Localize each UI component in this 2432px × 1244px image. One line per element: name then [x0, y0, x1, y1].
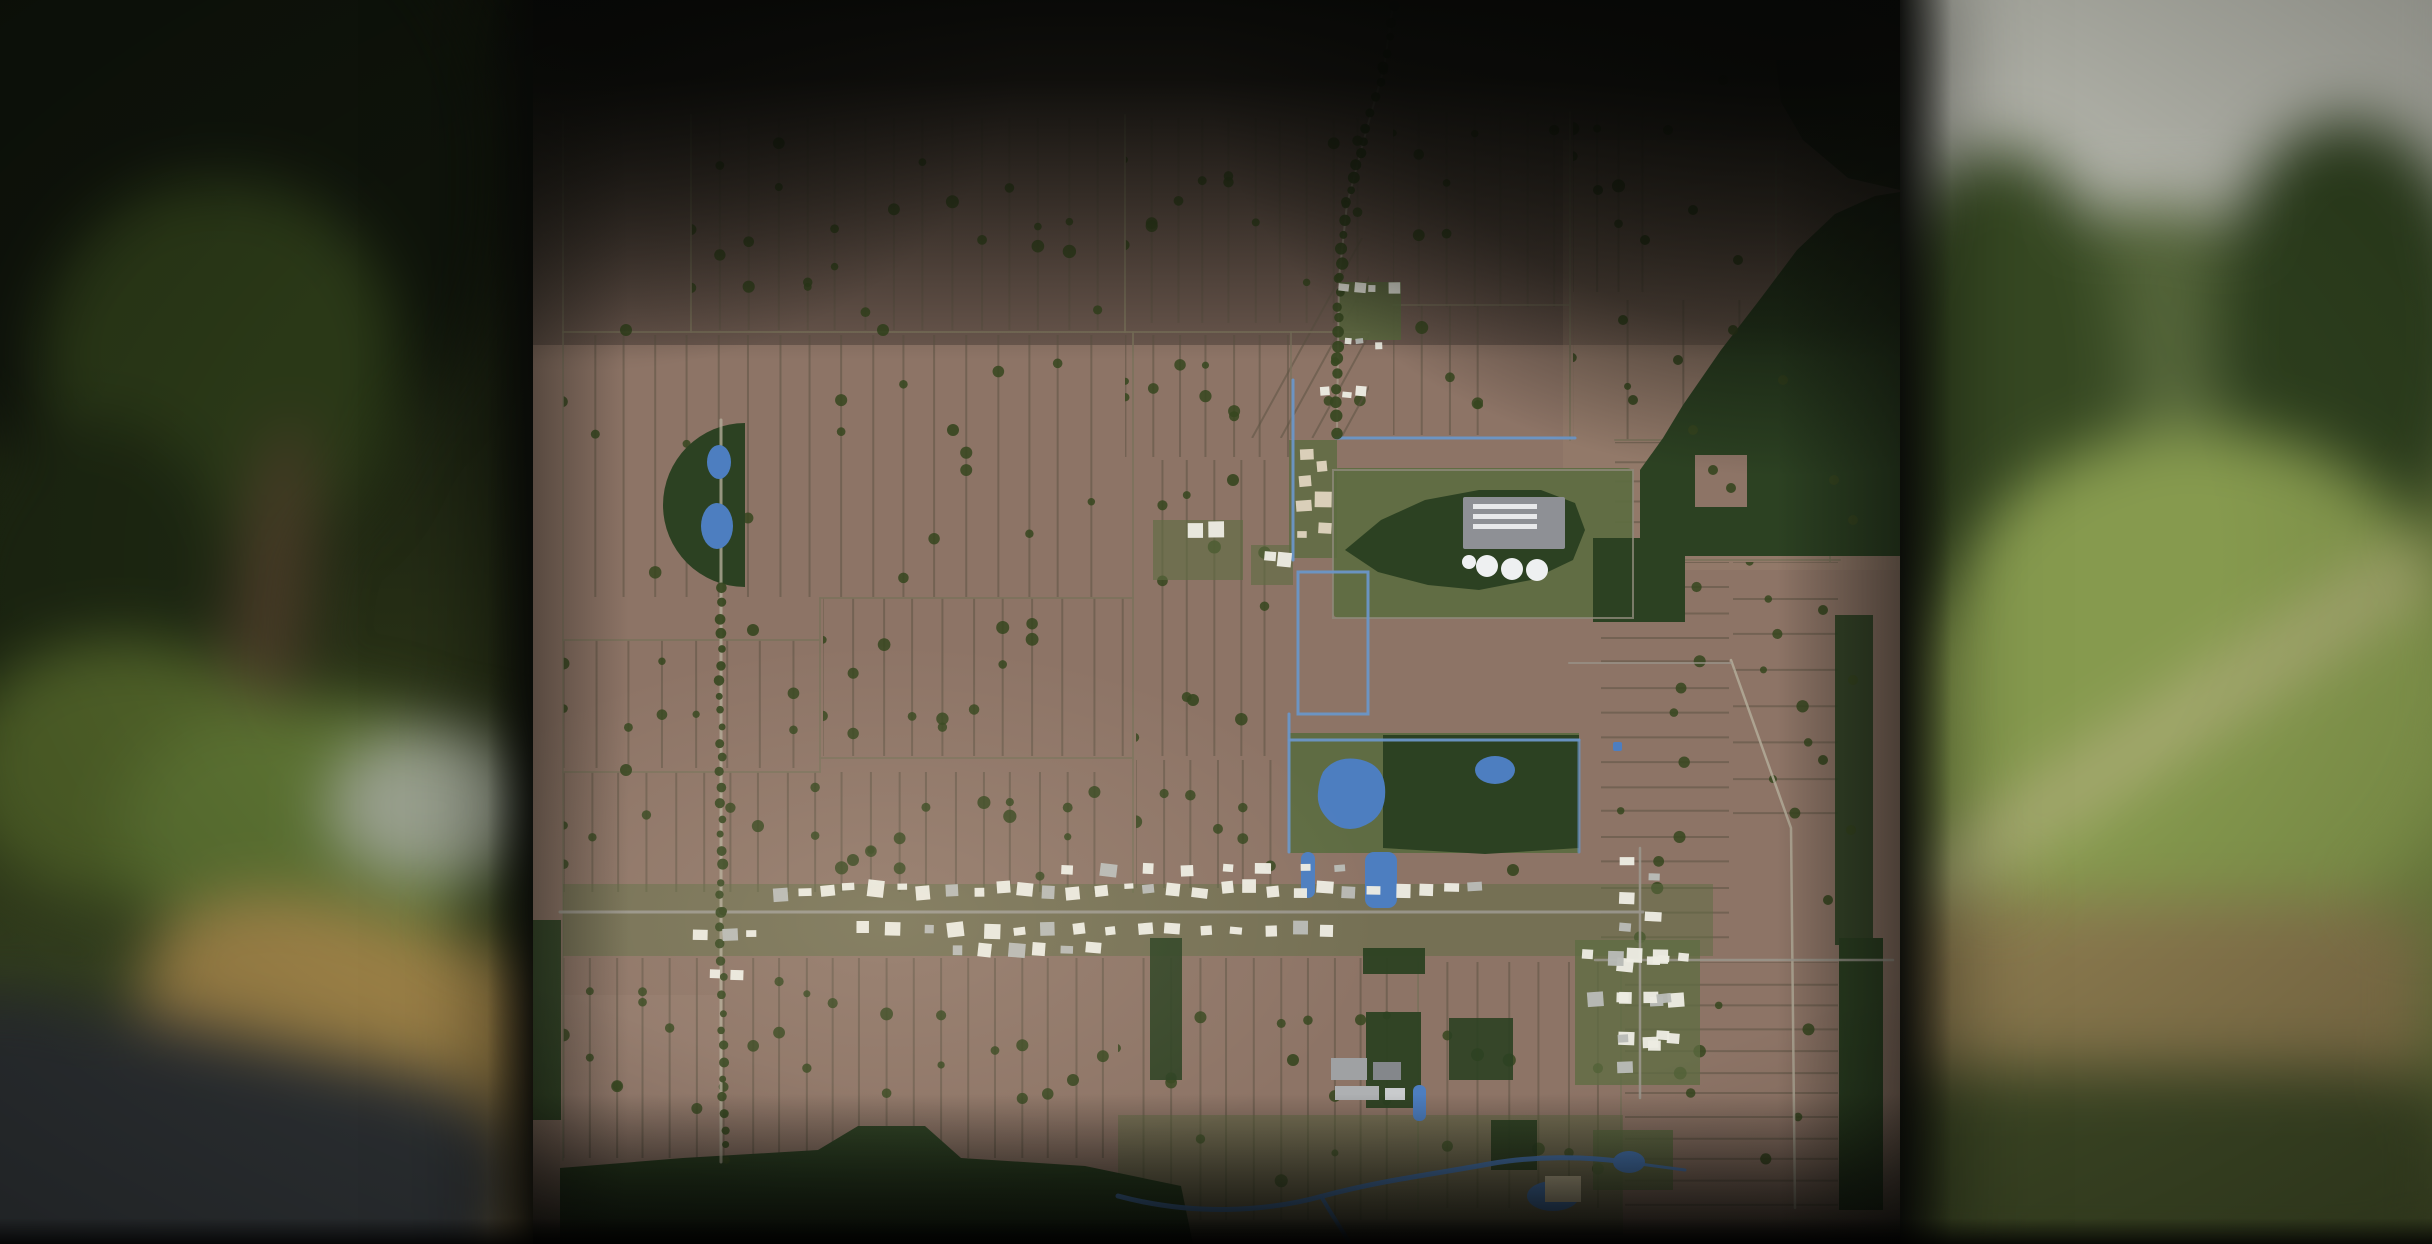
farm-map-overview[interactable]	[533, 0, 1900, 1244]
factory-silo	[1501, 558, 1523, 580]
grove-pond-2	[701, 503, 733, 549]
dark-ground-blob	[1888, 1070, 2432, 1244]
forest-pond	[1475, 756, 1515, 784]
village-pond-2	[1365, 852, 1397, 908]
forest-left-edge	[533, 920, 561, 1120]
background-right-blurred-landscape	[1888, 0, 2432, 1244]
factory-stripe	[1473, 514, 1537, 519]
hedge-1	[1363, 948, 1425, 974]
forest-by-factory-east	[1593, 538, 1685, 622]
small-pond	[1413, 1085, 1426, 1121]
factory-silo	[1526, 559, 1548, 581]
south-barn	[1545, 1176, 1581, 1202]
south-shed	[1335, 1086, 1379, 1100]
grass-village-band	[563, 884, 1713, 956]
forest-right-band-bottom	[1839, 938, 1883, 1210]
forest-clearing	[1695, 455, 1747, 507]
factory-stripe	[1473, 504, 1537, 509]
grove-pond-1	[707, 445, 731, 479]
factory-stripe	[1473, 524, 1537, 529]
park-pond	[1318, 759, 1385, 829]
south-shed	[1331, 1058, 1367, 1080]
background-left-blobs	[0, 0, 545, 1244]
tiny-pond	[1613, 742, 1622, 751]
south-shed	[1373, 1062, 1401, 1080]
hedge-5	[1150, 938, 1182, 1080]
map-canvas	[533, 0, 1900, 1244]
hedge-3	[1449, 1018, 1513, 1080]
rock-blob	[330, 730, 540, 880]
game-screenshot	[0, 0, 2432, 1244]
forest-park	[1383, 735, 1579, 854]
grass-bottom-meadow	[1118, 1115, 1623, 1235]
background-left-blurred-trees	[0, 0, 545, 1244]
factory-silo	[1476, 555, 1498, 577]
background-right-blobs	[1888, 0, 2432, 1244]
tan-field-blob	[1888, 900, 2428, 1090]
factory-silo-small	[1462, 555, 1476, 569]
south-shed	[1385, 1088, 1405, 1100]
forest-right-band-mid	[1835, 615, 1873, 945]
